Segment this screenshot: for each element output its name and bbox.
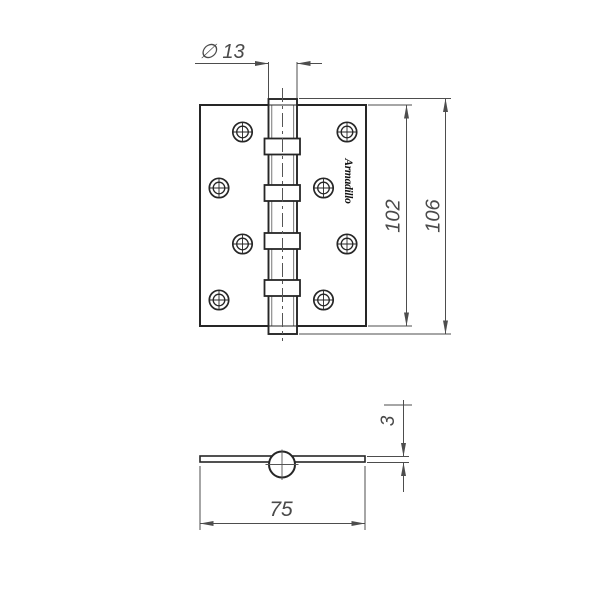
screw-hole-6	[337, 234, 356, 253]
screw-hole-7	[209, 290, 228, 309]
dim-leaf-thickness: 3	[367, 400, 412, 492]
dim-label-leaf-height: 102	[383, 199, 405, 232]
dim-leaf-height: 102	[368, 105, 412, 326]
screw-hole-4	[314, 178, 333, 197]
arrowhead	[401, 463, 406, 477]
technical-drawing-page: Armadillo ∅ 13 102 106	[0, 0, 600, 600]
arrowhead	[404, 313, 409, 327]
arrowhead	[443, 99, 448, 113]
dim-label-open-width: 75	[269, 498, 293, 521]
screw-hole-1	[233, 122, 252, 141]
dim-label-leaf-thickness: 3	[378, 415, 399, 426]
dim-label-pin-diameter: ∅ 13	[199, 41, 244, 63]
screw-hole-8	[314, 290, 333, 309]
arrowhead	[404, 105, 409, 119]
screw-hole-2	[337, 122, 356, 141]
brand-logo: Armadillo	[342, 157, 354, 204]
front-view: Armadillo	[200, 88, 366, 341]
arrowhead	[401, 443, 406, 457]
arrowhead	[352, 521, 366, 526]
arrowhead	[443, 321, 448, 335]
dim-pin-diameter: ∅ 13	[195, 41, 322, 98]
dim-label-overall-height: 106	[423, 198, 445, 232]
arrowhead	[200, 521, 214, 526]
arrowhead	[255, 61, 269, 66]
side-view	[200, 450, 365, 481]
screw-hole-5	[233, 234, 252, 253]
hinge-technical-drawing: Armadillo ∅ 13 102 106	[0, 0, 600, 600]
screw-hole-3	[209, 178, 228, 197]
arrowhead	[297, 61, 311, 66]
